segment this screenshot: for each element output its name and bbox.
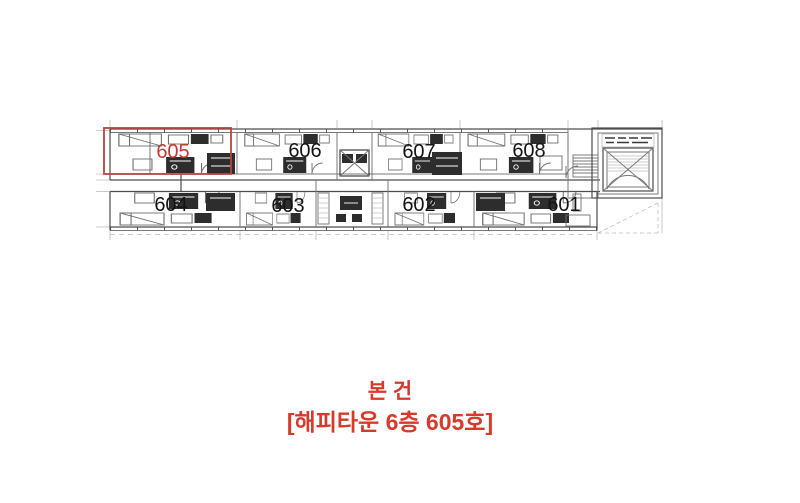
- unit-label-606: 606: [288, 141, 321, 161]
- unit-label-608: 608: [512, 141, 545, 161]
- page: 605 606 607 608 604 603 602 601 본 건 [해피타…: [0, 0, 800, 503]
- unit-label-602: 602: [402, 195, 435, 215]
- unit-label-607: 607: [402, 142, 435, 162]
- elevator-tiny-text: [605, 138, 652, 143]
- annotation-line2: [해피타운 6층 605호]: [0, 406, 780, 438]
- unit-label-601: 601: [547, 195, 580, 215]
- elevator-shaft: [592, 128, 662, 198]
- subject-annotation: 본 건 [해피타운 6층 605호]: [0, 377, 780, 438]
- ramp-dashed-outline: [598, 203, 658, 233]
- unit-label-604: 604: [154, 195, 187, 215]
- central-lobby: [340, 150, 369, 176]
- unit-label-605: 605: [156, 142, 189, 162]
- central-vestibule: [318, 193, 383, 224]
- unit-label-603: 603: [271, 196, 304, 216]
- annotation-line1: 본 건: [0, 377, 780, 406]
